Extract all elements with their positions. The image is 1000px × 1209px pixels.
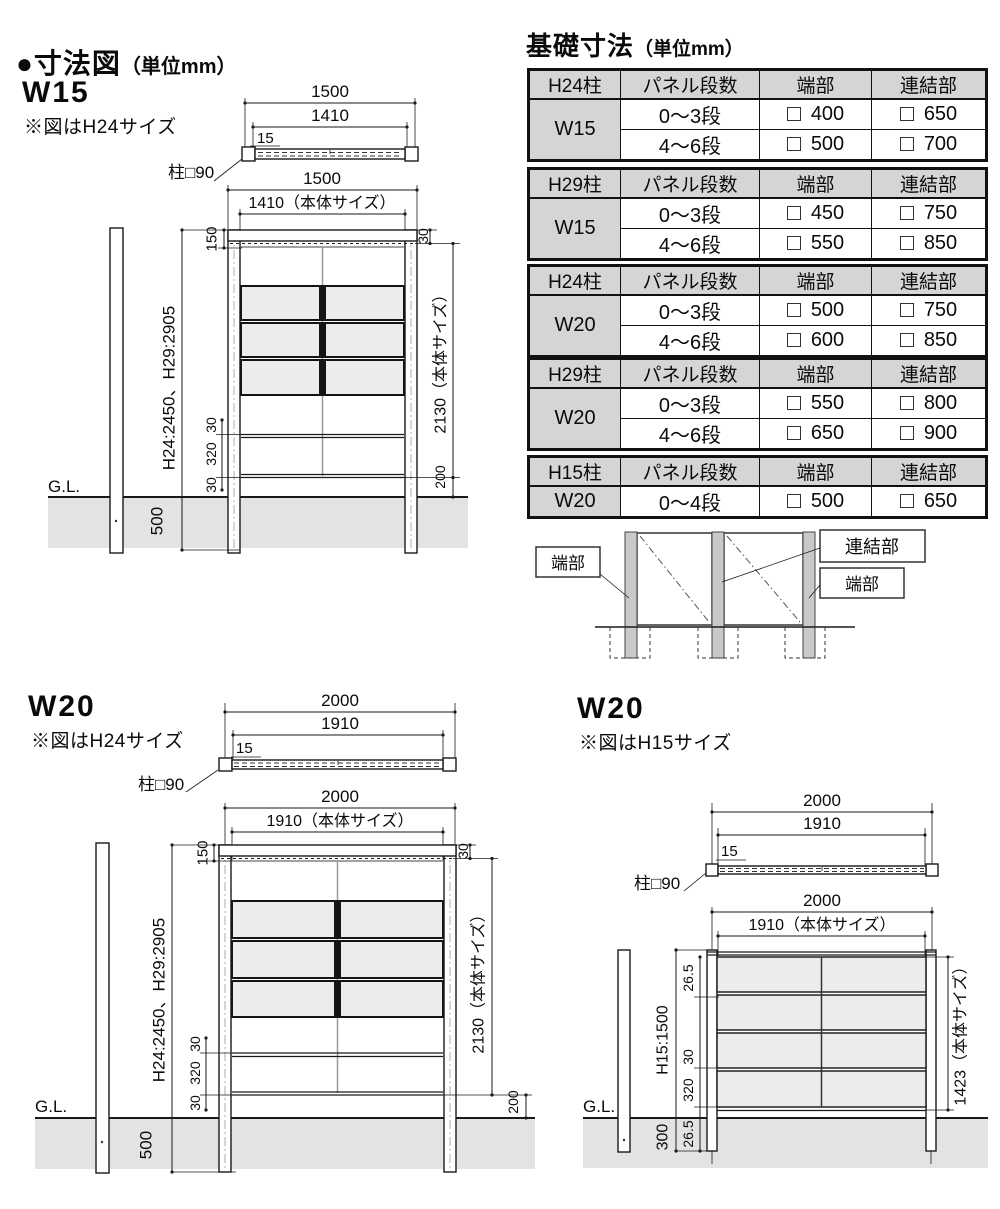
col-header-joint: 連結部 — [872, 359, 987, 389]
col-header-post: H29柱 — [529, 169, 621, 199]
dim-label-embed: 500 — [137, 1131, 156, 1159]
width-cell: W15 — [529, 99, 621, 161]
dim-label-body-height: 1423（本体サイズ） — [952, 958, 970, 1105]
dim-label-post-height: H24:2450、H29:2905 — [150, 918, 169, 1082]
ground-level-label: G.L. — [583, 1097, 615, 1116]
col-header-joint: 連結部 — [872, 70, 987, 100]
page-title-text: ●寸法図 — [16, 48, 121, 79]
foundation-table-h24-w15: H24柱 パネル段数 端部 連結部 W15 0〜3段 400 650 4〜6段 … — [527, 68, 988, 162]
foundation-table-h29-w15: H29柱 パネル段数 端部 連結部 W15 0〜3段 450 750 4〜6段 … — [527, 167, 988, 261]
foundation-title: 基礎寸法（単位mm） — [526, 26, 744, 63]
dim-label-inset: 15 — [257, 130, 274, 147]
dim-label-body: 1410（本体サイズ） — [248, 194, 395, 212]
square-symbol — [787, 303, 801, 317]
steps-cell: 4〜6段 — [621, 419, 760, 450]
width-cell: W20 — [529, 486, 621, 518]
post-size-label: 柱□90 — [138, 775, 184, 794]
square-symbol — [787, 396, 801, 410]
dim-label-body: 1910（本体サイズ） — [266, 812, 413, 830]
width-cell: W15 — [529, 198, 621, 260]
col-header-end: 端部 — [760, 169, 872, 199]
joint-post-label: 連結部 — [845, 537, 899, 557]
square-symbol — [900, 107, 914, 121]
dim-label-body-height: 2130（本体サイズ） — [470, 906, 488, 1053]
connection-diagram: 端部 連結部 端部 — [536, 530, 925, 658]
dim-label-overall: 1500 — [303, 169, 341, 188]
page-title-unit: （単位mm） — [121, 56, 237, 78]
dim-label-body: 1910 — [803, 814, 841, 833]
width-cell: W20 — [529, 388, 621, 450]
end-value-cell: 550 — [760, 388, 872, 419]
section-label-w20-h15: W20 — [577, 692, 645, 726]
dim-label-inset: 15 — [721, 843, 738, 860]
post-size-label: 柱□90 — [634, 874, 680, 893]
catalog-dimension-page: 1500 1410 15 柱□90 1500 1410（本体サイズ） — [0, 0, 1000, 1209]
end-value-cell: 650 — [760, 419, 872, 450]
end-value-cell: 500 — [760, 295, 872, 326]
foundation-table-h15-w20: H15柱 パネル段数 端部 連結部 W20 0〜4段 500 650 — [527, 455, 988, 519]
end-value-cell: 500 — [760, 130, 872, 161]
end-value-cell: 400 — [760, 99, 872, 130]
dim-label-body: 1410 — [311, 106, 349, 125]
dim-label-rail-mid: 320 — [680, 1078, 696, 1102]
square-symbol — [787, 494, 801, 508]
square-symbol — [900, 206, 914, 220]
steps-cell: 4〜6段 — [621, 229, 760, 260]
dim-label-post-height: H15:1500 — [655, 1005, 672, 1074]
square-symbol — [900, 426, 914, 440]
col-header-post: H24柱 — [529, 70, 621, 100]
end-post-label-right: 端部 — [845, 575, 879, 594]
foundation-table-h24-w20: H24柱 パネル段数 端部 連結部 W20 0〜3段 500 750 4〜6段 … — [527, 264, 988, 358]
dim-label-top-offset: 30 — [455, 843, 471, 859]
square-symbol — [787, 333, 801, 347]
foundation-title-unit: （単位mm） — [634, 39, 744, 60]
square-symbol — [787, 206, 801, 220]
dim-label-rail-top: 30 — [203, 417, 219, 433]
col-header-end: 端部 — [760, 266, 872, 296]
col-header-steps: パネル段数 — [621, 457, 760, 487]
steps-cell: 0〜3段 — [621, 99, 760, 130]
square-symbol — [787, 137, 801, 151]
foundation-table-h29-w20: H29柱 パネル段数 端部 連結部 W20 0〜3段 550 800 4〜6段 … — [527, 357, 988, 451]
post-size-label: 柱□90 — [168, 163, 214, 182]
dim-label-rail-bot: 30 — [187, 1095, 203, 1111]
square-symbol — [900, 303, 914, 317]
dim-label-embed: 500 — [148, 507, 167, 535]
square-symbol — [900, 137, 914, 151]
end-value-cell: 550 — [760, 229, 872, 260]
joint-value-cell: 750 — [872, 198, 987, 229]
col-header-joint: 連結部 — [872, 169, 987, 199]
square-symbol — [900, 236, 914, 250]
col-header-joint: 連結部 — [872, 457, 987, 487]
dim-label-inset: 15 — [236, 740, 253, 757]
foundation-title-text: 基礎寸法 — [526, 31, 634, 61]
w15-plan-view: 1500 1410 15 柱□90 — [168, 82, 418, 182]
section-note-w20-h15: ※図はH15サイズ — [579, 728, 732, 755]
w20h24-front-elevation: 2000 1910（本体サイズ） 150 H24:2450、H29:2 — [35, 787, 535, 1173]
joint-value-cell: 850 — [872, 326, 987, 357]
ground-level-label: G.L. — [35, 1097, 67, 1116]
dim-label-rail-top: 30 — [187, 1036, 203, 1052]
dim-label-rail-top: 30 — [680, 1049, 696, 1065]
steps-cell: 0〜3段 — [621, 295, 760, 326]
joint-value-cell: 900 — [872, 419, 987, 450]
square-symbol — [900, 494, 914, 508]
dim-label-post-height: H24:2450、H29:2905 — [160, 306, 179, 470]
dim-label-top-margin: 150 — [195, 840, 212, 865]
col-header-end: 端部 — [760, 70, 872, 100]
dim-label-overall: 2000 — [321, 691, 359, 710]
dim-label-rail-mid: 320 — [203, 442, 219, 466]
steps-cell: 4〜6段 — [621, 326, 760, 357]
joint-value-cell: 800 — [872, 388, 987, 419]
joint-value-cell: 850 — [872, 229, 987, 260]
section-label-w20-h24: W20 — [28, 690, 96, 724]
ground-level-label: G.L. — [48, 477, 80, 496]
steps-cell: 4〜6段 — [621, 130, 760, 161]
col-header-post: H24柱 — [529, 266, 621, 296]
col-header-steps: パネル段数 — [621, 359, 760, 389]
dim-label-body: 1910 — [321, 714, 359, 733]
w20h15-plan-view: 2000 1910 15 柱□90 — [634, 791, 938, 893]
end-value-cell: 600 — [760, 326, 872, 357]
end-value-cell: 500 — [760, 486, 872, 518]
square-symbol — [900, 396, 914, 410]
joint-value-cell: 650 — [872, 99, 987, 130]
section-note-w20-h24: ※図はH24サイズ — [31, 726, 184, 753]
col-header-steps: パネル段数 — [621, 70, 760, 100]
square-symbol — [900, 333, 914, 347]
w15-front-elevation: 1500 1410（本体サイズ） 150 — [48, 169, 468, 553]
col-header-end: 端部 — [760, 359, 872, 389]
dim-label-top-offset: 26.5 — [680, 964, 696, 991]
width-cell: W20 — [529, 295, 621, 357]
square-symbol — [787, 426, 801, 440]
end-value-cell: 450 — [760, 198, 872, 229]
joint-value-cell: 700 — [872, 130, 987, 161]
col-header-steps: パネル段数 — [621, 266, 760, 296]
dim-label-embed: 300 — [655, 1124, 672, 1151]
joint-value-cell: 750 — [872, 295, 987, 326]
dim-label-overall: 1500 — [311, 82, 349, 101]
joint-value-cell: 650 — [872, 486, 987, 518]
end-post-label-left: 端部 — [551, 554, 585, 573]
col-header-post: H29柱 — [529, 359, 621, 389]
steps-cell: 0〜3段 — [621, 198, 760, 229]
steps-cell: 0〜4段 — [621, 486, 760, 518]
steps-cell: 0〜3段 — [621, 388, 760, 419]
dim-label-body: 1910（本体サイズ） — [748, 916, 895, 934]
col-header-steps: パネル段数 — [621, 169, 760, 199]
w20h24-plan-view: 2000 1910 15 柱□90 — [138, 691, 456, 794]
section-label-w15: W15 — [22, 76, 90, 110]
dim-label-rail-bot: 30 — [203, 477, 219, 493]
dim-label-rail-bot: 26.5 — [680, 1120, 696, 1147]
dim-label-overall: 2000 — [321, 787, 359, 806]
dim-label-top-offset: 30 — [415, 228, 431, 244]
square-symbol — [787, 107, 801, 121]
w20h15-front-elevation: 2000 1910（本体サイズ） G.L. H15:1500 300 — [583, 891, 988, 1168]
dim-label-rail-mid: 320 — [187, 1061, 203, 1085]
dim-label-overall: 2000 — [803, 791, 841, 810]
dim-label-bottom-gap: 200 — [432, 465, 448, 489]
col-header-end: 端部 — [760, 457, 872, 487]
col-header-post: H15柱 — [529, 457, 621, 487]
dim-label-bottom-gap: 200 — [505, 1090, 521, 1114]
dim-label-body-height: 2130（本体サイズ） — [432, 286, 450, 433]
section-note-w15: ※図はH24サイズ — [24, 112, 177, 139]
col-header-joint: 連結部 — [872, 266, 987, 296]
dim-label-overall: 2000 — [803, 891, 841, 910]
square-symbol — [787, 236, 801, 250]
